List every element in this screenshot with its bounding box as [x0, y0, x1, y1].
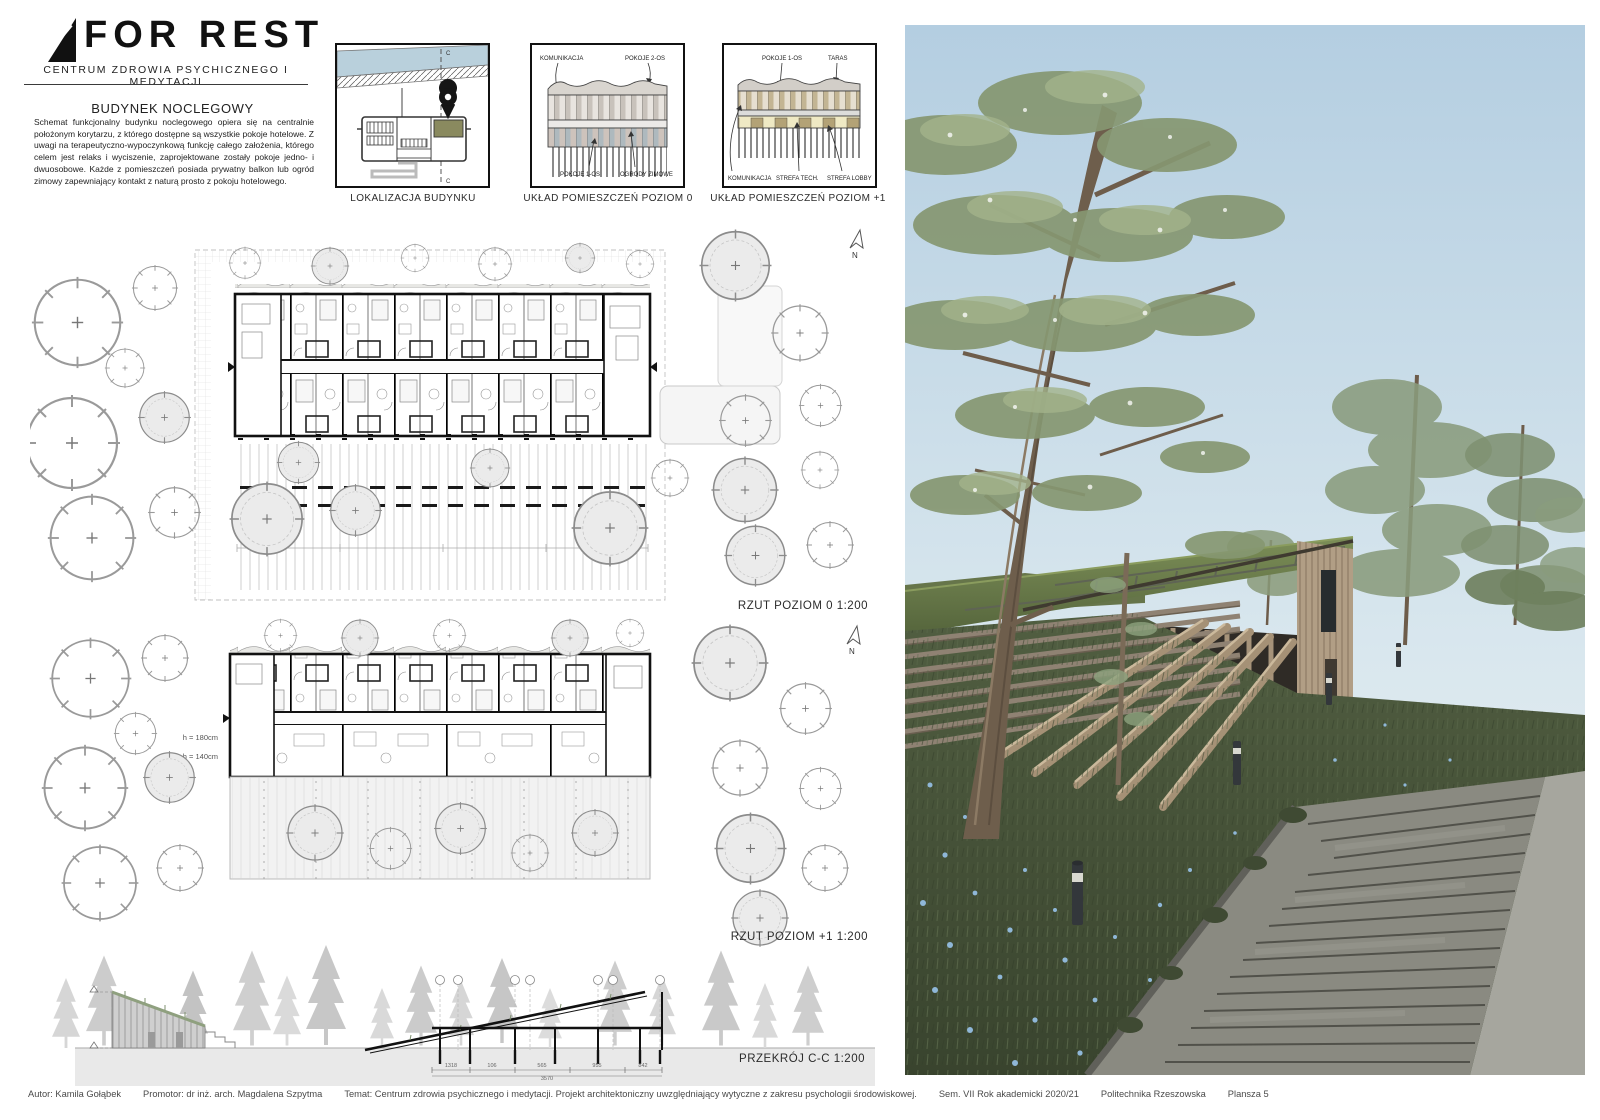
building-plan-upper — [223, 644, 650, 777]
svg-text:N: N — [849, 647, 855, 656]
label-pokoje-1os: POKOJE 1-OS — [762, 56, 802, 62]
label-komunikacja: KOMUNIKACJA — [540, 56, 583, 62]
height-note-2: h = 140cm — [183, 752, 218, 761]
footer-sem: Sem. VII Rok akademicki 2020/21 — [939, 1089, 1079, 1099]
svg-text:955: 955 — [592, 1063, 601, 1069]
intro-title: BUDYNEK NOCLEGOWY — [30, 101, 315, 116]
tree-cluster-right — [692, 625, 849, 947]
footer-credits: Autor: Kamila GołąbekPromotor: dr inż. a… — [28, 1089, 878, 1099]
label-taras: TARAS — [828, 56, 848, 62]
intro-body: Schemat funkcjonalny budynku noclegowego… — [34, 117, 314, 187]
label-ogrody-zimowe: OGRODY ZIMOWE — [620, 172, 673, 178]
footer-uczelnia: Politechnika Rzeszowska — [1101, 1089, 1206, 1099]
height-note-1: h = 180cm — [183, 733, 218, 742]
diagram-poziom0: KOMUNIKACJA POKOJE 2-OS POKOJE 1-OS OGRO… — [530, 43, 685, 188]
plan0-caption: RZUT POZIOM 0 1:200 — [738, 600, 868, 612]
tree-row-top — [229, 243, 655, 286]
logo-title: FOR REST — [84, 14, 324, 57]
location-pin-icon — [439, 79, 457, 119]
north-arrow: N — [847, 626, 860, 656]
elevation-building — [90, 986, 235, 1048]
diagram-poziom0-drawing: KOMUNIKACJA POKOJE 2-OS POKOJE 1-OS OGRO… — [532, 45, 683, 186]
tree-cluster-left — [42, 634, 204, 921]
footer-autor: Autor: Kamila Gołąbek — [28, 1089, 121, 1099]
label-pokoje-2os: POKOJE 2-OS — [625, 56, 665, 62]
svg-text:1318: 1318 — [445, 1063, 457, 1069]
label-strefa-lobby: STREFA LOBBY — [827, 176, 872, 182]
building-plan — [228, 284, 657, 440]
footer-plansza: Plansza 5 — [1228, 1089, 1269, 1099]
diagram-lokalizacja-drawing: C C — [337, 45, 488, 186]
logo-icon — [44, 16, 84, 64]
footer-promotor: Promotor: dr inż. arch. Magdalena Szpytm… — [143, 1089, 322, 1099]
tree-cluster-left — [30, 265, 201, 582]
plan-poziom-1: h = 180cm h = 140cm N RZUT POZIOM +1 — [30, 618, 875, 958]
diagram-poziom1-caption: UKŁAD POMIESZCZEŃ POZIOM +1 — [703, 193, 893, 204]
plan-poziom-0: N RZUT POZIOM 0 1:200 — [30, 228, 875, 620]
svg-text:N: N — [852, 251, 858, 260]
diagram-poziom1-drawing: POKOJE 1-OS TARAS KOMUNIKACJA STREFA TEC… — [724, 45, 875, 186]
label-pokoje-1os: POKOJE 1-OS — [560, 172, 600, 178]
svg-text:3570: 3570 — [541, 1076, 553, 1082]
svg-text:565: 565 — [537, 1063, 546, 1069]
section-mark-bottom: C — [446, 179, 451, 185]
diagram-lokalizacja: C C — [335, 43, 490, 188]
diagram-lokalizacja-caption: LOKALIZACJA BUDYNKU — [318, 193, 508, 204]
diagram-poziom1: POKOJE 1-OS TARAS KOMUNIKACJA STREFA TEC… — [722, 43, 877, 188]
diagram-poziom0-caption: UKŁAD POMIESZCZEŃ POZIOM 0 — [513, 193, 703, 204]
section-mark-top: C — [446, 51, 451, 57]
svg-text:106: 106 — [487, 1063, 496, 1069]
svg-text:842: 842 — [638, 1063, 647, 1069]
logo-rule — [24, 84, 308, 85]
north-arrow: N — [850, 230, 863, 260]
footer-temat: Temat: Centrum zdrowia psychicznego i me… — [344, 1089, 917, 1099]
presentation-board: FOR REST CENTRUM ZDROWIA PSYCHICZNEGO I … — [0, 0, 1600, 1120]
section-drawing: 1318 106 565 955 842 3570 PRZEKRÓJ C-C 1… — [30, 940, 875, 1090]
section-caption: PRZEKRÓJ C-C 1:200 — [739, 1052, 865, 1065]
render-photo — [905, 25, 1585, 1075]
label-komunikacja: KOMUNIKACJA — [728, 176, 771, 182]
site-building-footprint — [357, 117, 471, 161]
label-strefa-tech: STREFA TECH. — [776, 176, 819, 182]
